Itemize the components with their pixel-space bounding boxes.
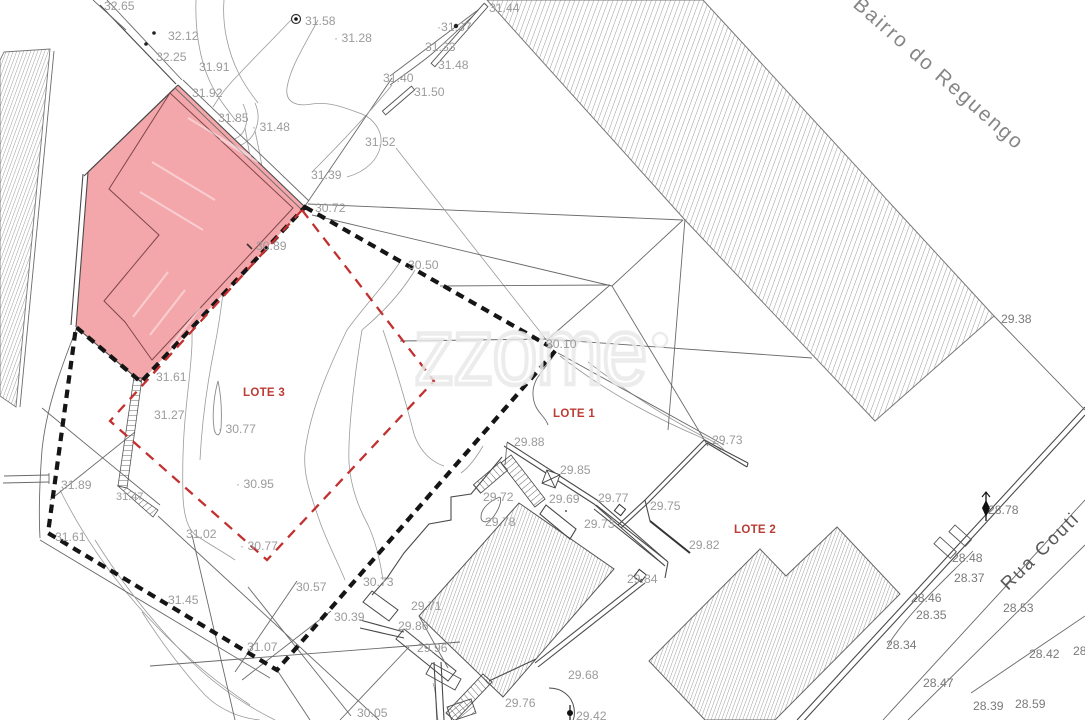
svg-text:· 30.77: · 30.77 xyxy=(218,422,256,436)
svg-text:29.86: 29.86 xyxy=(398,619,429,633)
svg-text:30.73: 30.73 xyxy=(363,575,394,589)
svg-text:31.44: 31.44 xyxy=(489,1,520,15)
svg-text:32.25: 32.25 xyxy=(156,50,187,64)
svg-text:31.89: 31.89 xyxy=(61,478,92,492)
svg-text:31.47: 31.47 xyxy=(116,491,144,503)
svg-text:29.78: 29.78 xyxy=(485,515,516,529)
svg-text:31.61: 31.61 xyxy=(55,530,86,544)
svg-text:31.07: 31.07 xyxy=(247,640,278,654)
svg-text:28.78: 28.78 xyxy=(988,503,1019,517)
svg-text:29.76: 29.76 xyxy=(505,696,536,710)
svg-text:31.39: 31.39 xyxy=(311,168,342,182)
svg-text:28.4: 28.4 xyxy=(1073,644,1085,658)
svg-text:31.40: 31.40 xyxy=(383,71,414,85)
svg-text:31.61: 31.61 xyxy=(156,370,187,384)
svg-text:29.84: 29.84 xyxy=(627,572,658,586)
svg-text:31.91: 31.91 xyxy=(199,60,230,74)
svg-text:31.85: 31.85 xyxy=(218,111,249,125)
svg-text:32.65: 32.65 xyxy=(104,0,135,13)
svg-text:30.50: 30.50 xyxy=(408,258,439,272)
svg-text:29.85: 29.85 xyxy=(560,463,591,477)
svg-text:· 31.48: · 31.48 xyxy=(252,120,290,134)
svg-text:29.96: 29.96 xyxy=(417,641,448,655)
svg-text:30.72: 30.72 xyxy=(315,201,346,215)
svg-text:30.89: 30.89 xyxy=(256,239,287,253)
svg-text:zzome: zzome xyxy=(414,297,646,405)
svg-text:28.46: 28.46 xyxy=(911,591,942,605)
svg-text:28.48: 28.48 xyxy=(952,551,983,565)
svg-text:29.82: 29.82 xyxy=(689,538,720,552)
svg-text:Bairro do Reguengo: Bairro do Reguengo xyxy=(849,0,1029,155)
svg-text:29.71: 29.71 xyxy=(411,599,442,613)
svg-text:29.69: 29.69 xyxy=(549,492,580,506)
svg-text:29.38: 29.38 xyxy=(1001,312,1032,326)
svg-text:29.77: 29.77 xyxy=(598,491,629,505)
svg-text:31.52: 31.52 xyxy=(365,135,396,149)
svg-text:30.05: 30.05 xyxy=(357,706,388,720)
svg-text:29.75: 29.75 xyxy=(650,499,681,513)
svg-text:28.42: 28.42 xyxy=(1029,647,1060,661)
svg-text:LOTE 3: LOTE 3 xyxy=(243,387,285,399)
svg-text:LOTE 2: LOTE 2 xyxy=(734,524,776,536)
svg-text:32.12: 32.12 xyxy=(168,29,199,43)
svg-text:29.68: 29.68 xyxy=(568,668,599,682)
svg-text:31.92: 31.92 xyxy=(192,86,223,100)
svg-text:31.50: 31.50 xyxy=(414,85,445,99)
svg-text:28.37: 28.37 xyxy=(954,571,985,585)
svg-text:28.35: 28.35 xyxy=(916,608,947,622)
svg-text:28.53: 28.53 xyxy=(1003,601,1034,615)
svg-text:29.42: 29.42 xyxy=(576,709,607,720)
svg-text:30.10: 30.10 xyxy=(546,337,577,351)
svg-text:· 30.77: · 30.77 xyxy=(240,539,278,553)
svg-text:29.88: 29.88 xyxy=(514,435,545,449)
svg-text:28.39: 28.39 xyxy=(973,699,1004,713)
svg-text:·31.37: ·31.37 xyxy=(437,20,472,34)
svg-text:29.72: 29.72 xyxy=(483,490,514,504)
svg-text:31.02: 31.02 xyxy=(186,527,217,541)
svg-text:31.27: 31.27 xyxy=(154,408,185,422)
svg-text:LOTE 1: LOTE 1 xyxy=(553,408,595,420)
svg-text:31.45: 31.45 xyxy=(168,593,199,607)
svg-text:29.73: 29.73 xyxy=(584,517,615,531)
svg-text:31.48: 31.48 xyxy=(438,58,469,72)
svg-text:· 30.95: · 30.95 xyxy=(236,477,274,491)
svg-text:30.57: 30.57 xyxy=(296,580,327,594)
svg-text:28.59: 28.59 xyxy=(1015,697,1046,711)
svg-text:29.73: 29.73 xyxy=(712,433,743,447)
svg-text:31.33: 31.33 xyxy=(425,40,456,54)
svg-text:30.39: 30.39 xyxy=(334,610,365,624)
svg-text:28.47: 28.47 xyxy=(923,676,954,690)
svg-text:· 31.28: · 31.28 xyxy=(334,31,372,45)
svg-text:28.34: 28.34 xyxy=(886,638,917,652)
svg-text:31.58: 31.58 xyxy=(305,14,336,28)
svg-text:Rua Couti: Rua Couti xyxy=(996,507,1084,594)
